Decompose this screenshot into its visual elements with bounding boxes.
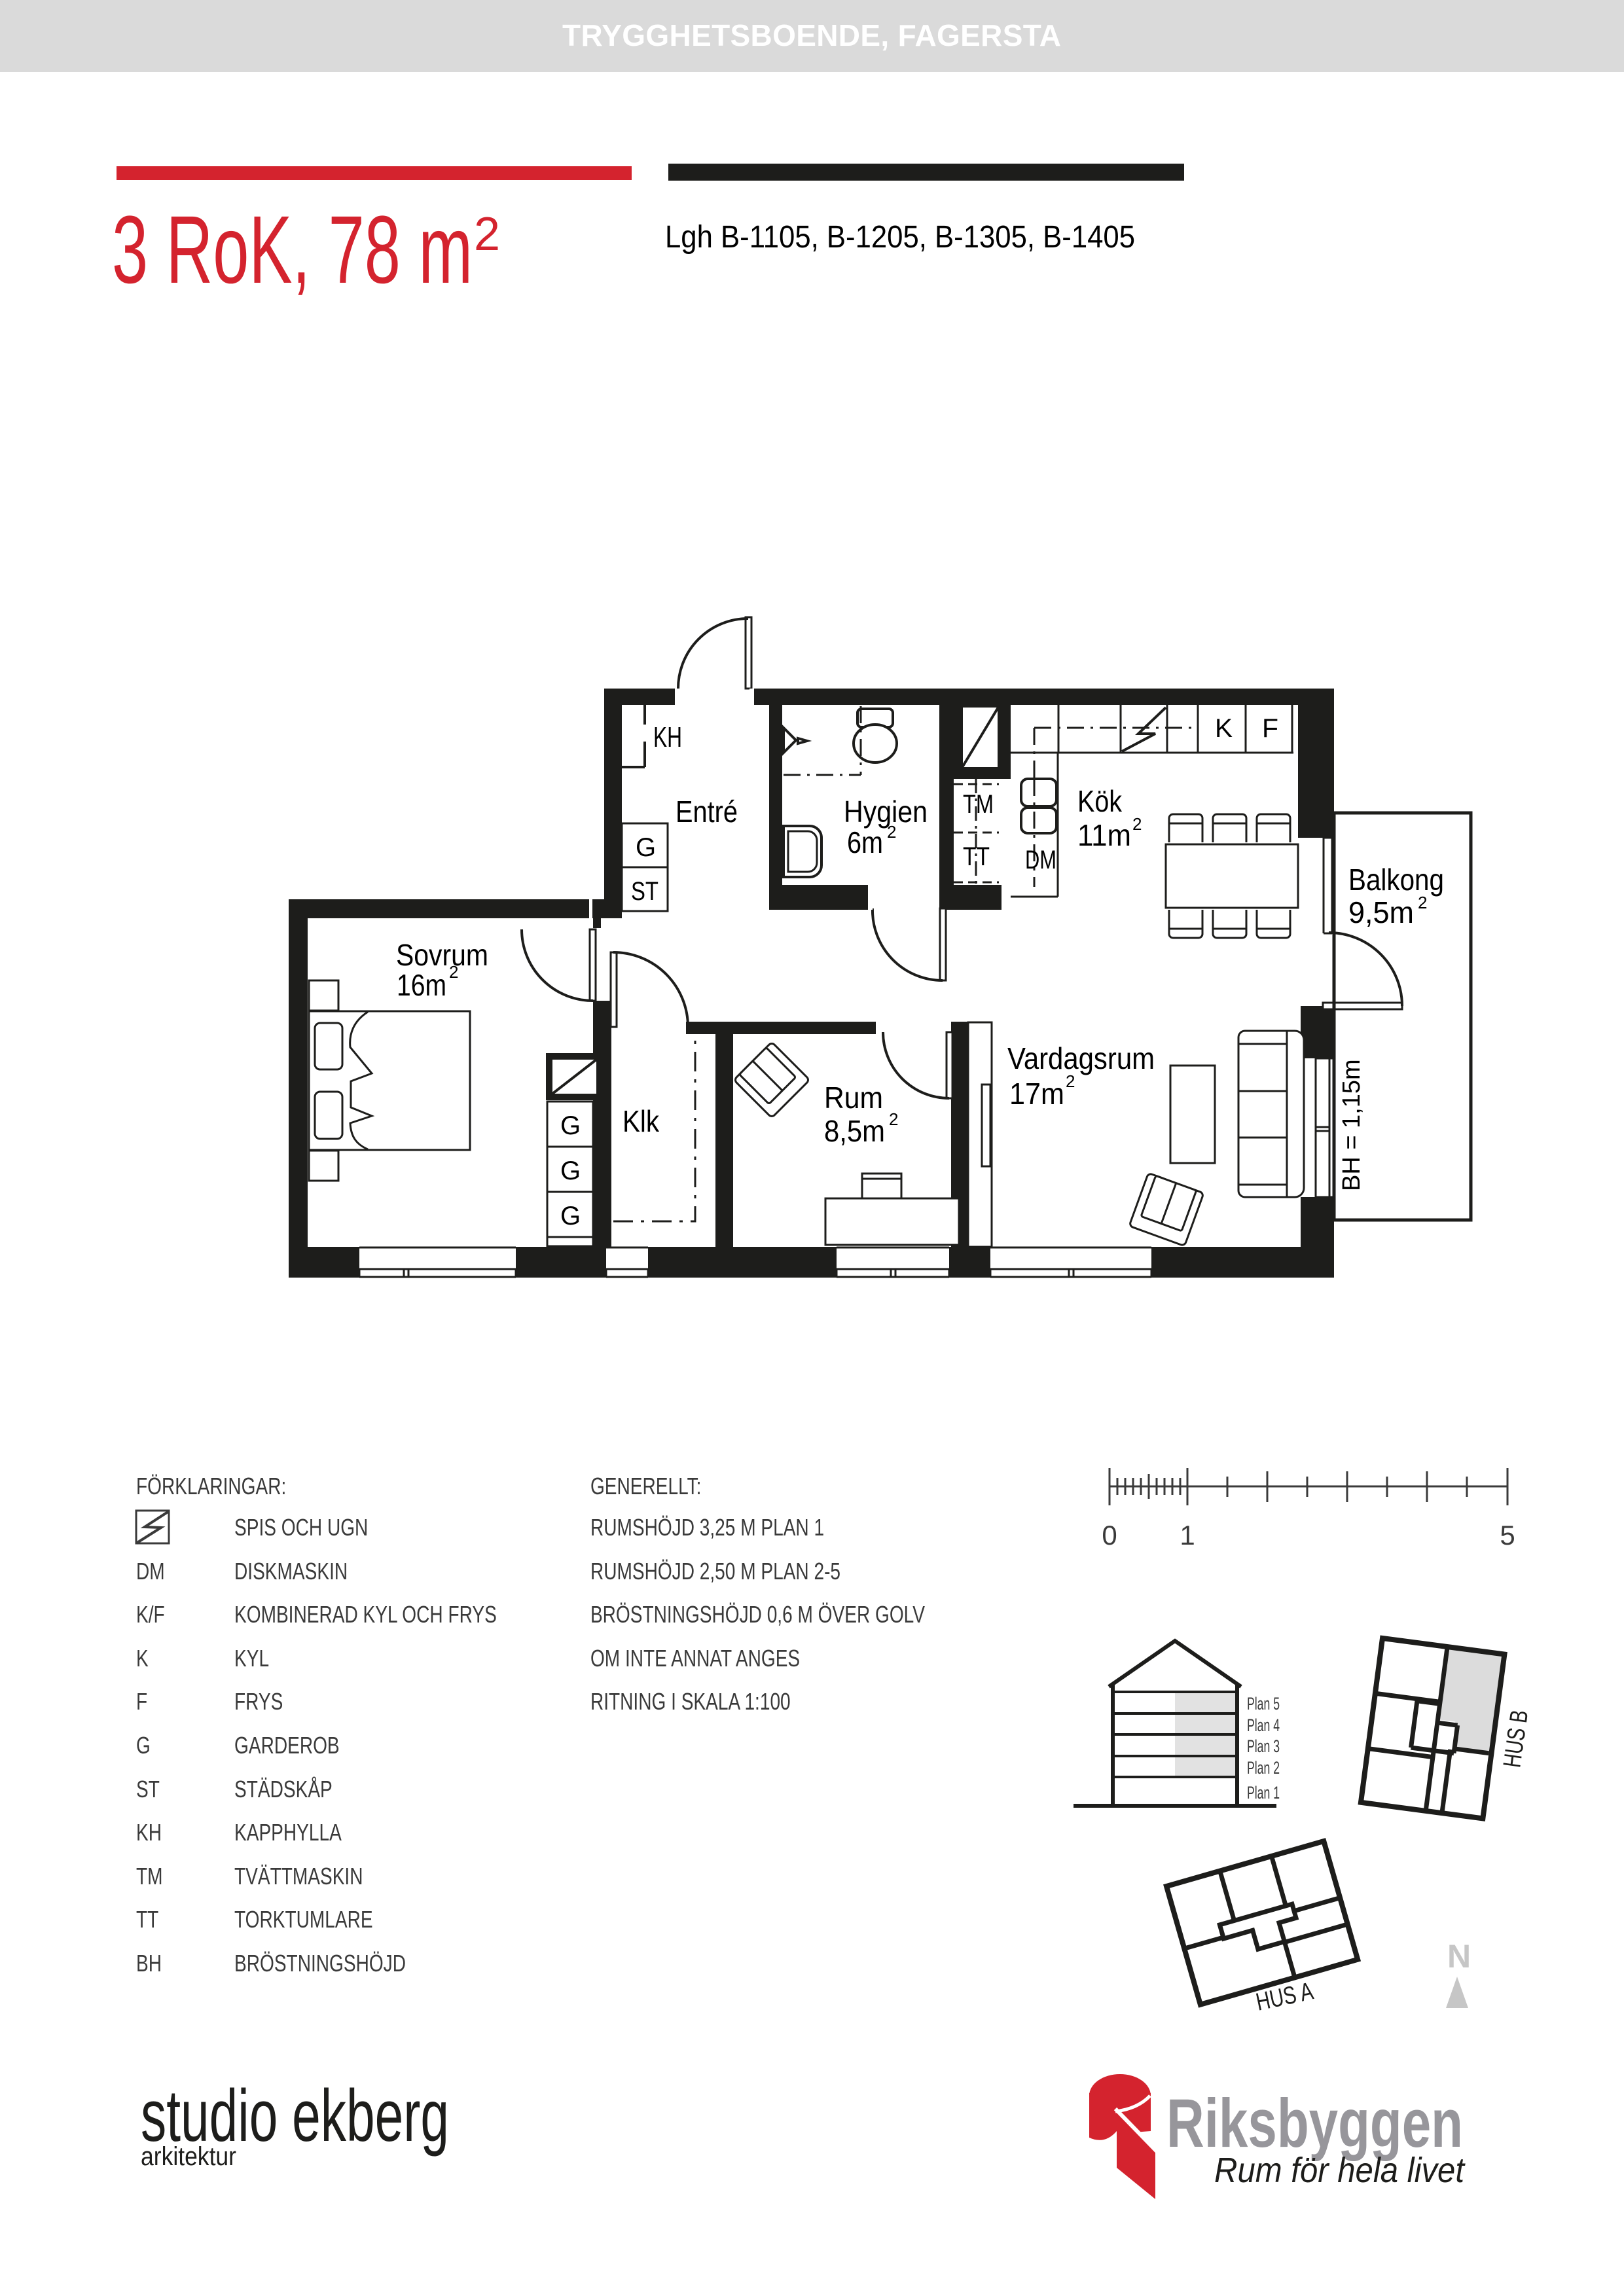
svg-text:Entré: Entré bbox=[676, 795, 738, 829]
svg-text:5: 5 bbox=[1500, 1520, 1515, 1551]
svg-text:BRÖSTNINGSHÖJD: BRÖSTNINGSHÖJD bbox=[234, 1950, 406, 1977]
svg-text:Rum: Rum bbox=[824, 1081, 883, 1115]
svg-text:6m: 6m bbox=[847, 825, 883, 859]
svg-text:HUS B: HUS B bbox=[1498, 1708, 1534, 1769]
svg-text:KH: KH bbox=[653, 721, 682, 753]
svg-text:KYL: KYL bbox=[234, 1645, 269, 1672]
svg-text:RUMSHÖJD 3,25 M PLAN 1: RUMSHÖJD 3,25 M PLAN 1 bbox=[590, 1515, 824, 1541]
svg-text:0: 0 bbox=[1102, 1520, 1117, 1551]
svg-text:GARDEROB: GARDEROB bbox=[234, 1732, 340, 1759]
svg-text:2: 2 bbox=[889, 1109, 898, 1129]
svg-text:TRYGGHETSBOENDE, FAGERSTA: TRYGGHETSBOENDE, FAGERSTA bbox=[562, 18, 1061, 52]
svg-text:16m: 16m bbox=[397, 968, 446, 1002]
svg-text:K/F: K/F bbox=[136, 1602, 165, 1628]
svg-text:Balkong: Balkong bbox=[1348, 863, 1444, 897]
svg-text:Plan 5: Plan 5 bbox=[1247, 1694, 1280, 1713]
svg-text:K: K bbox=[136, 1645, 149, 1672]
svg-text:G: G bbox=[560, 1111, 581, 1140]
svg-text:Plan 1: Plan 1 bbox=[1247, 1783, 1280, 1803]
svg-text:Sovrum: Sovrum bbox=[396, 938, 488, 972]
svg-text:SPIS OCH UGN: SPIS OCH UGN bbox=[234, 1515, 368, 1541]
svg-text:TORKTUMLARE: TORKTUMLARE bbox=[234, 1907, 373, 1933]
svg-text:TT: TT bbox=[136, 1907, 158, 1933]
svg-text:N: N bbox=[1447, 1938, 1471, 1975]
svg-text:Plan 4: Plan 4 bbox=[1247, 1715, 1280, 1735]
svg-text:8,5m: 8,5m bbox=[824, 1114, 885, 1148]
svg-text:F: F bbox=[136, 1689, 147, 1715]
svg-text:2: 2 bbox=[1418, 893, 1427, 912]
svg-text:HUS A: HUS A bbox=[1254, 1977, 1316, 2016]
svg-text:KOMBINERAD KYL OCH FRYS: KOMBINERAD KYL OCH FRYS bbox=[234, 1602, 497, 1628]
svg-text:Plan 3: Plan 3 bbox=[1247, 1736, 1280, 1756]
svg-text:BH: BH bbox=[136, 1950, 162, 1977]
svg-text:Kök: Kök bbox=[1077, 784, 1123, 818]
svg-text:STÄDSKÅP: STÄDSKÅP bbox=[234, 1776, 333, 1803]
svg-text:G: G bbox=[560, 1202, 581, 1230]
svg-text:Hygien: Hygien bbox=[844, 795, 928, 829]
svg-text:Klk: Klk bbox=[623, 1104, 660, 1138]
svg-text:TVÄTTMASKIN: TVÄTTMASKIN bbox=[234, 1863, 363, 1890]
svg-text:GENERELLT:: GENERELLT: bbox=[590, 1473, 701, 1499]
svg-text:G: G bbox=[636, 833, 656, 862]
svg-text:BH = 1,15m: BH = 1,15m bbox=[1338, 1059, 1365, 1191]
svg-text:11m: 11m bbox=[1077, 818, 1131, 852]
svg-text:DISKMASKIN: DISKMASKIN bbox=[234, 1558, 348, 1585]
svg-text:2: 2 bbox=[449, 962, 458, 982]
svg-text:Rum för hela livet: Rum för hela livet bbox=[1214, 2151, 1466, 2190]
svg-text:TT: TT bbox=[963, 842, 990, 871]
svg-text:KAPPHYLLA: KAPPHYLLA bbox=[234, 1820, 342, 1846]
svg-text:G: G bbox=[136, 1732, 151, 1759]
svg-text:RUMSHÖJD 2,50 M PLAN 2-5: RUMSHÖJD 2,50 M PLAN 2-5 bbox=[590, 1558, 840, 1585]
svg-text:ST: ST bbox=[136, 1776, 160, 1803]
svg-text:TM: TM bbox=[136, 1863, 163, 1890]
svg-text:2: 2 bbox=[1132, 814, 1142, 834]
svg-text:9,5m: 9,5m bbox=[1348, 895, 1414, 929]
svg-text:F: F bbox=[1262, 714, 1278, 743]
svg-text:FÖRKLARINGAR:: FÖRKLARINGAR: bbox=[136, 1473, 286, 1499]
svg-text:arkitektur: arkitektur bbox=[141, 2142, 236, 2171]
svg-text:G: G bbox=[560, 1157, 581, 1185]
svg-text:Lgh B-1105, B-1205, B-1305, B-: Lgh B-1105, B-1205, B-1305, B-1405 bbox=[665, 220, 1135, 255]
svg-text:KH: KH bbox=[136, 1820, 162, 1846]
svg-text:3 RoK, 78 m: 3 RoK, 78 m bbox=[112, 196, 473, 304]
svg-text:OM INTE ANNAT ANGES: OM INTE ANNAT ANGES bbox=[590, 1645, 800, 1672]
svg-text:Plan 2: Plan 2 bbox=[1247, 1758, 1280, 1778]
svg-text:DM: DM bbox=[1025, 846, 1056, 874]
svg-text:2: 2 bbox=[474, 208, 500, 260]
svg-text:DM: DM bbox=[136, 1558, 165, 1585]
svg-text:2: 2 bbox=[887, 822, 896, 842]
svg-text:1: 1 bbox=[1180, 1520, 1195, 1551]
svg-text:2: 2 bbox=[1066, 1071, 1075, 1091]
svg-text:ST: ST bbox=[631, 877, 659, 906]
svg-text:TM: TM bbox=[963, 790, 994, 819]
svg-text:17m: 17m bbox=[1009, 1077, 1064, 1111]
svg-text:Vardagsrum: Vardagsrum bbox=[1007, 1041, 1155, 1075]
svg-text:FRYS: FRYS bbox=[234, 1689, 283, 1715]
svg-text:RITNING I SKALA 1:100: RITNING I SKALA 1:100 bbox=[590, 1689, 791, 1715]
svg-text:K: K bbox=[1215, 714, 1233, 743]
svg-text:BRÖSTNINGSHÖJD 0,6 M ÖVER GOLV: BRÖSTNINGSHÖJD 0,6 M ÖVER GOLV bbox=[590, 1602, 925, 1628]
